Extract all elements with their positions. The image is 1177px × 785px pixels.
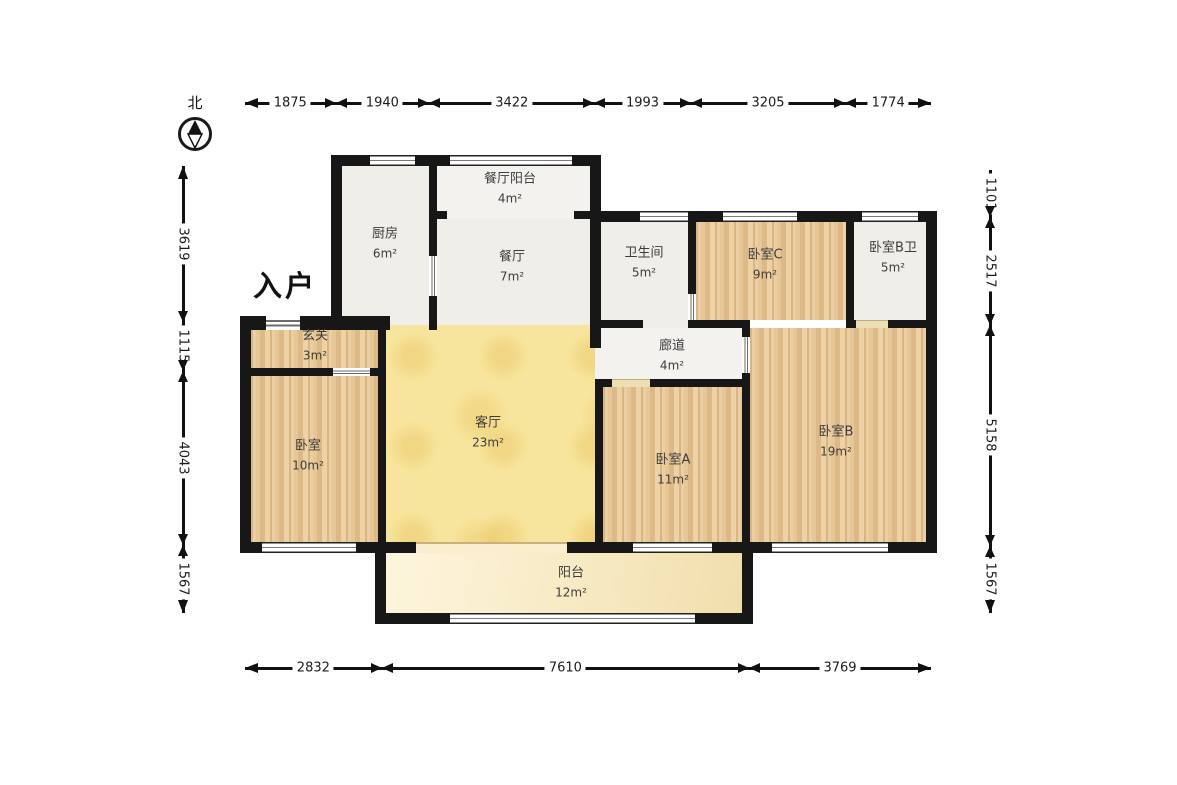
window <box>633 542 712 553</box>
room-area: 11m² <box>656 470 691 488</box>
wall <box>888 320 937 328</box>
room-area: 19m² <box>819 442 854 460</box>
wall <box>926 211 937 553</box>
room-label-bedroom-c: 卧室C9m² <box>747 245 782 283</box>
wall <box>742 320 750 337</box>
room-area: 4m² <box>659 356 685 374</box>
room-area: 7m² <box>499 267 525 285</box>
door-opening <box>856 320 888 328</box>
room-label-bedroom: 卧室10m² <box>292 436 324 474</box>
dimension-label-top: 1993 <box>622 96 663 111</box>
window <box>262 542 356 553</box>
dimension-label-left: 3619 <box>176 224 191 265</box>
dimension-tick <box>985 206 995 217</box>
wall <box>650 379 750 387</box>
room-label-living-room: 客厅23m² <box>472 413 504 451</box>
wall <box>240 316 251 553</box>
room-area: 3m² <box>302 346 328 364</box>
dimension-tick <box>178 360 188 371</box>
room-area: 12m² <box>555 583 587 601</box>
room-area: 5m² <box>624 263 663 281</box>
wall <box>375 542 386 624</box>
room-name: 卧室B <box>819 422 854 442</box>
room-name: 阳台 <box>555 563 587 583</box>
room-label-balcony: 阳台12m² <box>555 563 587 601</box>
dimension-arrow <box>178 166 188 179</box>
door-opening <box>612 379 650 387</box>
dimension-arrow <box>985 600 995 613</box>
dimension-label-top: 3205 <box>747 96 788 111</box>
wall <box>331 155 342 330</box>
room-name: 卫生间 <box>624 243 663 263</box>
dimension-tick <box>382 663 393 673</box>
room-label-bedroom-b-bath: 卧室B卫5m² <box>869 238 917 276</box>
dimension-tick <box>845 98 856 108</box>
dimension-tick <box>985 535 995 546</box>
wall <box>429 296 437 330</box>
compass: 北 <box>176 92 214 157</box>
room-name: 客厅 <box>472 413 504 433</box>
room-label-dining: 餐厅7m² <box>499 247 525 285</box>
wall <box>240 316 266 330</box>
wall <box>595 379 603 553</box>
wall <box>712 542 742 553</box>
door-opening <box>429 256 437 296</box>
wall <box>378 327 386 553</box>
wall <box>429 211 447 219</box>
room-area: 9m² <box>747 265 782 283</box>
room-label-dining-balcony: 餐厅阳台4m² <box>484 169 536 207</box>
wall <box>846 320 856 328</box>
room-name: 卧室 <box>292 436 324 456</box>
dimension-tick <box>178 311 188 322</box>
wall <box>240 368 333 376</box>
room-area: 5m² <box>869 258 917 276</box>
window <box>450 613 695 624</box>
dimension-tick <box>594 98 605 108</box>
room-area: 23m² <box>472 433 504 451</box>
room-area: 10m² <box>292 456 324 474</box>
dimension-label-right: 1567 <box>983 559 998 600</box>
room-name: 厨房 <box>372 224 398 244</box>
north-label: 北 <box>176 92 214 113</box>
dimension-label-left: 1567 <box>176 559 191 600</box>
room-label-corridor: 廊道4m² <box>659 336 685 374</box>
dimension-label-bottom: 2832 <box>293 661 334 676</box>
wall <box>688 222 696 294</box>
dimension-arrow <box>245 663 258 673</box>
window <box>862 211 918 222</box>
dimension-tick <box>749 663 760 673</box>
wall <box>742 373 750 542</box>
entrance-label: 入户 <box>253 263 317 305</box>
door-opening <box>333 368 370 376</box>
dimension-arrow <box>918 98 931 108</box>
wall <box>375 542 416 553</box>
dimension-label-right: 2517 <box>983 251 998 292</box>
dimension-tick <box>429 98 440 108</box>
dimension-tick <box>418 98 429 108</box>
wall <box>846 222 854 320</box>
wall <box>742 542 753 624</box>
room-label-bathroom: 卫生间5m² <box>624 243 663 281</box>
dimension-arrow <box>178 600 188 613</box>
room-name: 餐厅 <box>499 247 525 267</box>
room-name: 餐厅阳台 <box>484 169 536 189</box>
dimension-tick <box>178 371 188 382</box>
wall <box>688 320 750 328</box>
dimension-tick <box>985 217 995 228</box>
dimension-label-top: 1774 <box>868 96 909 111</box>
floor-plan-canvas: 北 入户 厨房6m²餐厅阳台4m²餐厅7m²卫生间5m²卧室C9m²卧室B卫5m… <box>0 0 1177 785</box>
door-opening <box>266 316 300 330</box>
room-name: 玄关 <box>302 326 328 346</box>
dimension-tick <box>985 325 995 336</box>
room-name: 卧室C <box>747 245 782 265</box>
dimension-tick <box>985 314 995 325</box>
dimension-tick <box>336 98 347 108</box>
dimension-label-top: 1875 <box>270 96 311 111</box>
room-label-kitchen: 厨房6m² <box>372 224 398 262</box>
dimension-label-bottom: 3769 <box>819 661 860 676</box>
room-name: 卧室B卫 <box>869 238 917 258</box>
dimension-label-left: 4043 <box>176 437 191 478</box>
room-name: 廊道 <box>659 336 685 356</box>
wall <box>590 320 643 328</box>
wall <box>574 211 590 219</box>
dimension-tick <box>985 546 995 557</box>
wall <box>567 542 633 553</box>
dimension-arrow <box>245 98 258 108</box>
room-label-bedroom-a: 卧室A11m² <box>656 450 691 488</box>
dimension-arrow <box>918 663 931 673</box>
dimension-label-top: 1940 <box>362 96 403 111</box>
window <box>772 542 888 553</box>
window <box>370 155 415 166</box>
room-area: 4m² <box>484 189 536 207</box>
door-opening <box>742 337 750 373</box>
window <box>640 211 688 222</box>
door-opening <box>688 294 696 320</box>
compass-icon <box>176 115 214 153</box>
dimension-tick <box>178 545 188 556</box>
dimension-tick <box>178 534 188 545</box>
room-label-foyer: 玄关3m² <box>302 326 328 364</box>
dimension-tick <box>325 98 336 108</box>
dimension-tick <box>834 98 845 108</box>
room-label-bedroom-b: 卧室B19m² <box>819 422 854 460</box>
dimension-tick <box>680 98 691 108</box>
dimension-label-top: 3422 <box>491 96 532 111</box>
dimension-tick <box>583 98 594 108</box>
dimension-label-right: 5158 <box>983 415 998 456</box>
dimension-tick <box>691 98 702 108</box>
door-opening <box>416 542 567 553</box>
window <box>450 155 572 166</box>
room-area: 6m² <box>372 244 398 262</box>
door-opening <box>643 320 688 328</box>
room-name: 卧室A <box>656 450 691 470</box>
window <box>723 211 797 222</box>
dimension-label-bottom: 7610 <box>545 661 586 676</box>
wall <box>370 368 386 376</box>
dimension-tick <box>738 663 749 673</box>
dimension-tick <box>371 663 382 673</box>
